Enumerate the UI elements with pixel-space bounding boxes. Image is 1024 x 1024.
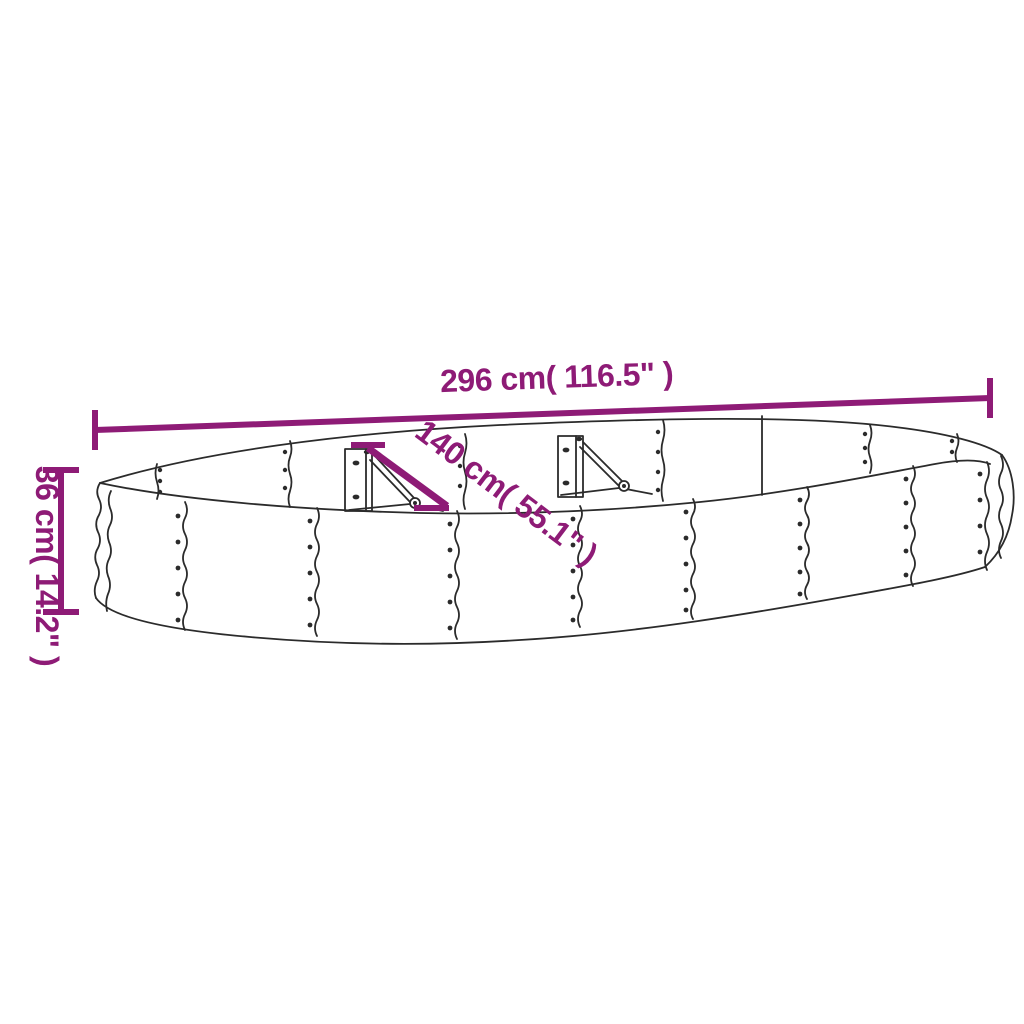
diagram-canvas: 296 cm( 116.5" ) 36 cm( 14.2" ) 140 cm( … <box>0 0 1024 1024</box>
panel-seam-front <box>691 499 695 619</box>
panel-seam-back <box>289 441 292 507</box>
panel-seam-front <box>805 487 809 599</box>
panel-seam-front <box>911 466 915 586</box>
panel-seam-front <box>315 508 319 636</box>
support-post-1 <box>345 449 443 511</box>
bed-bottom-edge <box>96 567 985 644</box>
panel-seam-front <box>455 511 459 639</box>
height-dimension-label: 36 cm( 14.2" ) <box>29 466 65 666</box>
bed-left-corrugation-outer <box>95 483 101 598</box>
bed-right-corrugation-seam <box>985 462 989 570</box>
support-brace-2 <box>580 442 624 487</box>
brace-triangle-lines-2 <box>561 488 652 495</box>
panel-seam-front <box>183 502 187 630</box>
product-dimension-diagram: 296 cm( 116.5" ) 36 cm( 14.2" ) 140 cm( … <box>0 0 1024 1024</box>
support-post-2 <box>558 436 652 497</box>
bed-top-rim <box>100 419 1002 483</box>
bed-left-corrugation-inner <box>106 491 112 611</box>
length-dimension-line <box>95 398 990 430</box>
panel-seam-back <box>869 425 872 473</box>
length-dimension-label: 296 cm( 116.5" ) <box>440 355 674 399</box>
panel-seam-back <box>662 420 665 501</box>
